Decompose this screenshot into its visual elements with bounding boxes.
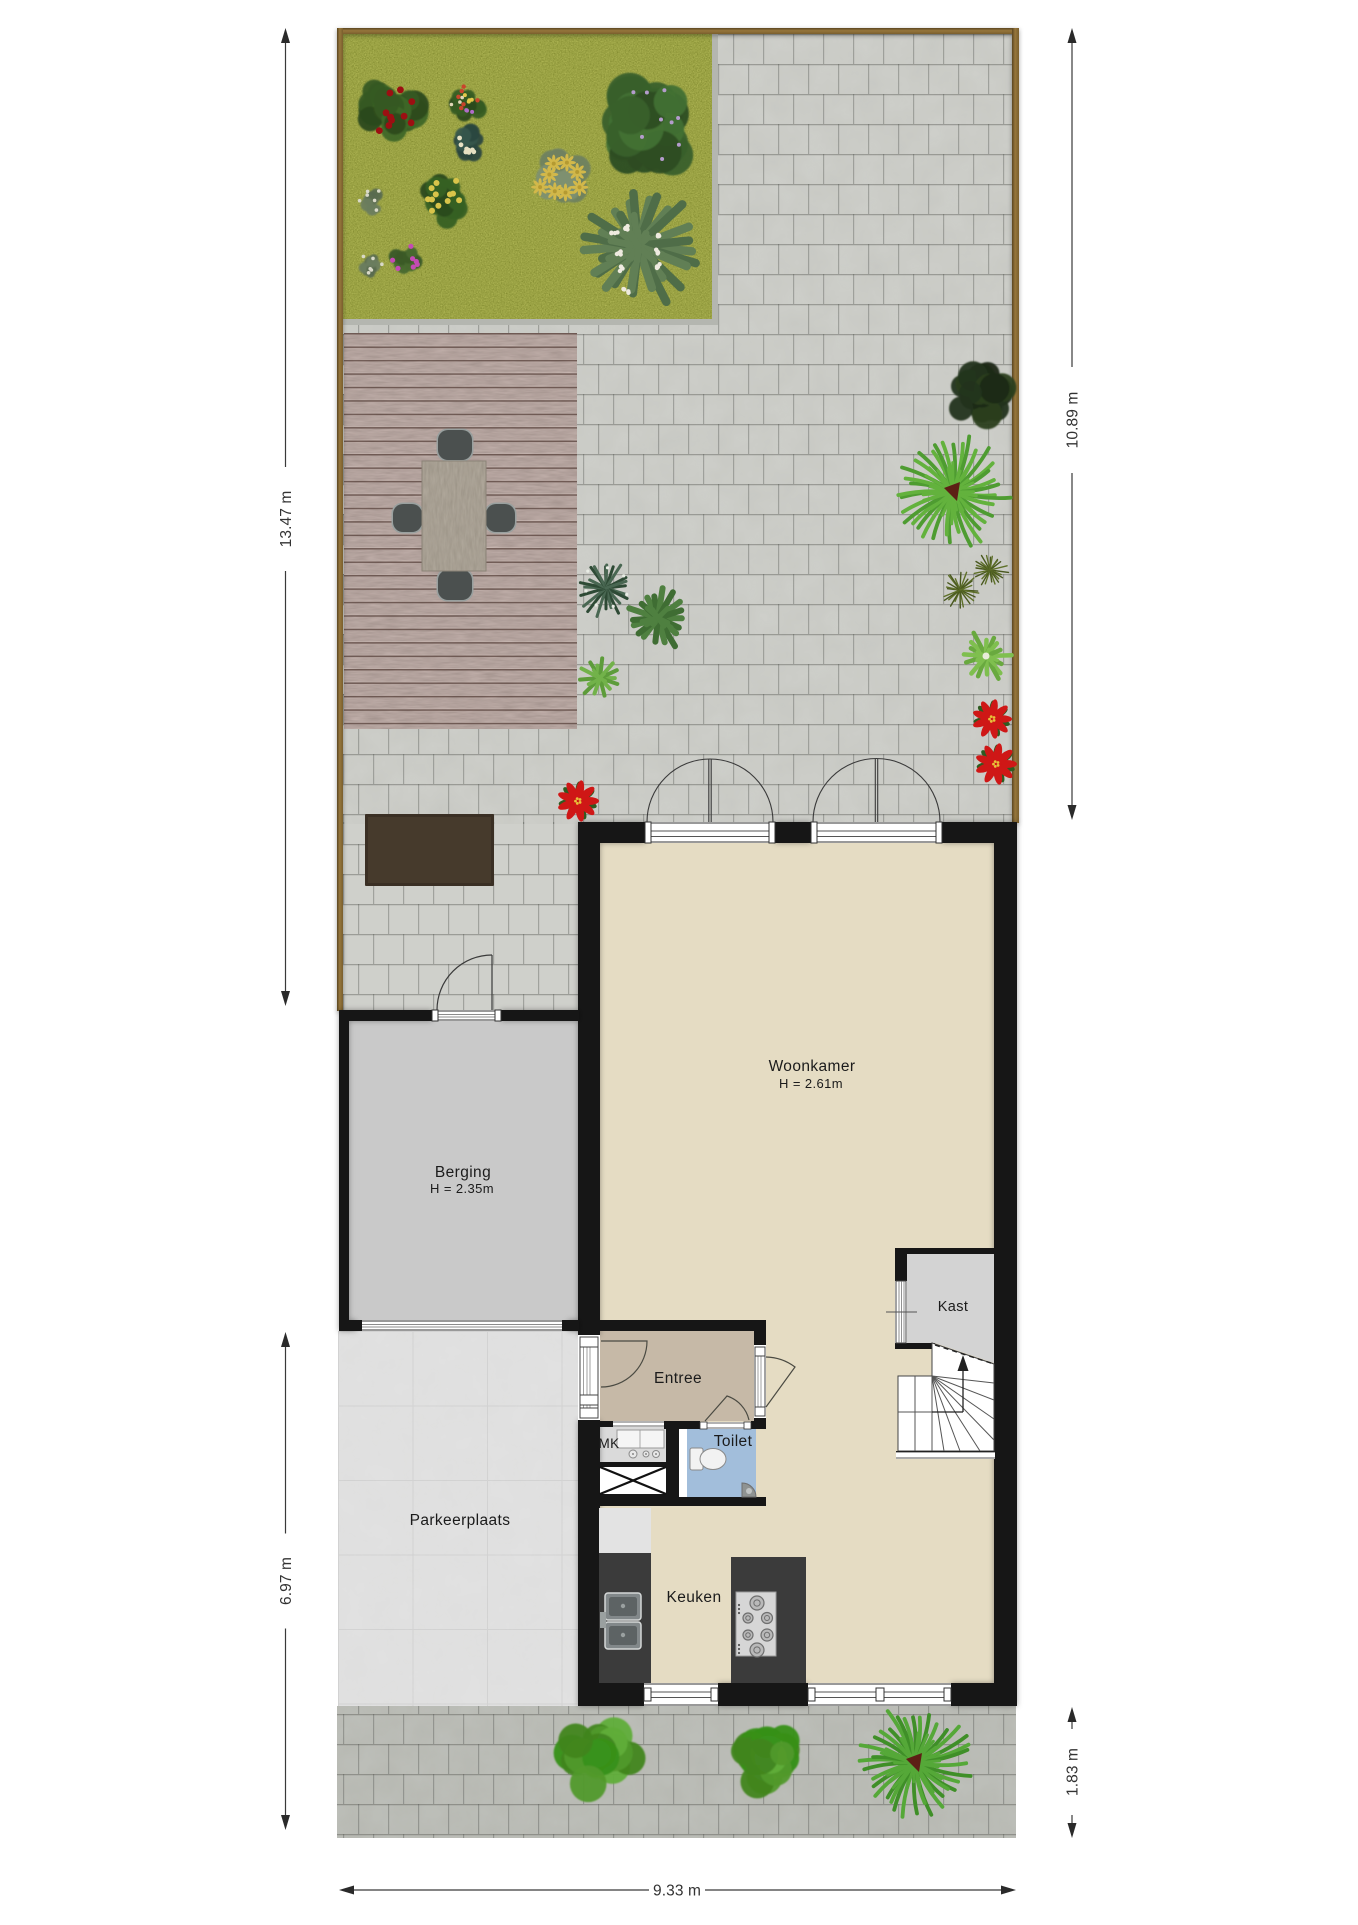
svg-text:1.83 m: 1.83 m [1065, 1748, 1082, 1796]
svg-text:H = 2.35m: H = 2.35m [430, 1181, 494, 1196]
svg-text:Parkeerplaats: Parkeerplaats [410, 1512, 511, 1529]
svg-text:6.97 m: 6.97 m [278, 1557, 295, 1605]
svg-text:Berging: Berging [435, 1164, 491, 1181]
svg-text:9.33 m: 9.33 m [653, 1883, 701, 1900]
svg-text:MK: MK [598, 1436, 619, 1451]
svg-text:Keuken: Keuken [667, 1589, 722, 1606]
svg-text:10.89 m: 10.89 m [1065, 392, 1082, 449]
svg-text:H = 2.61m: H = 2.61m [779, 1076, 843, 1091]
svg-text:Toilet: Toilet [714, 1433, 753, 1450]
svg-text:Woonkamer: Woonkamer [769, 1058, 856, 1075]
svg-text:13.47 m: 13.47 m [278, 491, 295, 548]
svg-text:Entree: Entree [654, 1370, 702, 1387]
svg-text:Kast: Kast [938, 1299, 969, 1315]
